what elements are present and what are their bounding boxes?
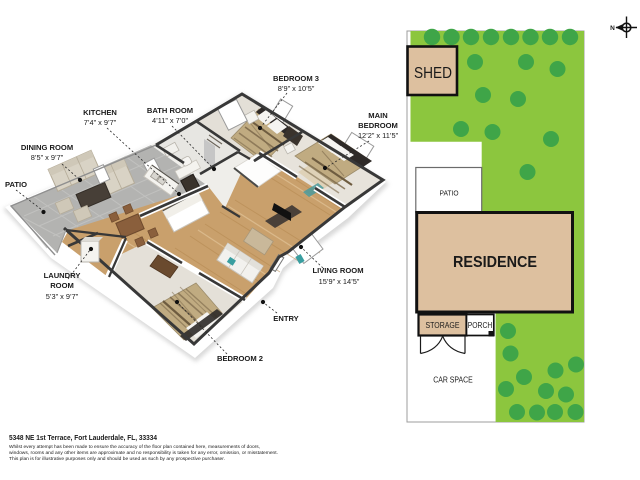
- svg-text:PATIO: PATIO: [440, 189, 459, 198]
- svg-text:BEDROOM: BEDROOM: [358, 121, 398, 130]
- svg-text:DINING ROOM: DINING ROOM: [21, 143, 73, 152]
- svg-text:12’2” x 11’5”: 12’2” x 11’5”: [358, 131, 399, 140]
- svg-text:N: N: [610, 25, 615, 32]
- svg-text:BEDROOM 2: BEDROOM 2: [217, 354, 263, 363]
- svg-text:CAR SPACE: CAR SPACE: [433, 375, 473, 385]
- svg-text:SHED: SHED: [414, 65, 452, 82]
- svg-text:4’11” x 7’0”: 4’11” x 7’0”: [152, 116, 189, 125]
- svg-text:LAUNDRY: LAUNDRY: [44, 271, 81, 280]
- svg-text:5’3” x 9’7”: 5’3” x 9’7”: [46, 292, 79, 301]
- svg-text:7’4” x 9’7”: 7’4” x 9’7”: [84, 118, 117, 127]
- svg-text:15’9” x 14’5”: 15’9” x 14’5”: [319, 277, 360, 286]
- svg-text:KITCHEN: KITCHEN: [83, 108, 117, 117]
- svg-text:PORCH: PORCH: [468, 320, 493, 330]
- svg-text:Whilst every attempt has been: Whilst every attempt has been made to en…: [9, 444, 260, 450]
- svg-text:STORAGE: STORAGE: [426, 320, 460, 330]
- svg-text:ENTRY: ENTRY: [273, 314, 298, 323]
- svg-text:BATH ROOM: BATH ROOM: [147, 106, 193, 115]
- svg-text:MAIN: MAIN: [368, 111, 387, 120]
- svg-text:BEDROOM 3: BEDROOM 3: [273, 74, 319, 83]
- svg-text:8’5” x 9’7”: 8’5” x 9’7”: [31, 153, 64, 162]
- svg-text:This plan is for illustrative: This plan is for illustrative purposes o…: [9, 456, 225, 462]
- svg-text:RESIDENCE: RESIDENCE: [453, 254, 537, 271]
- svg-text:windows, rooms and any other i: windows, rooms and any other items are a…: [9, 450, 278, 456]
- svg-text:PATIO: PATIO: [5, 180, 27, 189]
- svg-text:ROOM: ROOM: [50, 281, 74, 290]
- svg-text:8’9” x 10’5”: 8’9” x 10’5”: [278, 84, 315, 93]
- svg-text:LIVING ROOM: LIVING ROOM: [312, 266, 363, 275]
- svg-text:5348 NE 1st Terrace, Fort Laud: 5348 NE 1st Terrace, Fort Lauderdale, FL…: [9, 433, 158, 442]
